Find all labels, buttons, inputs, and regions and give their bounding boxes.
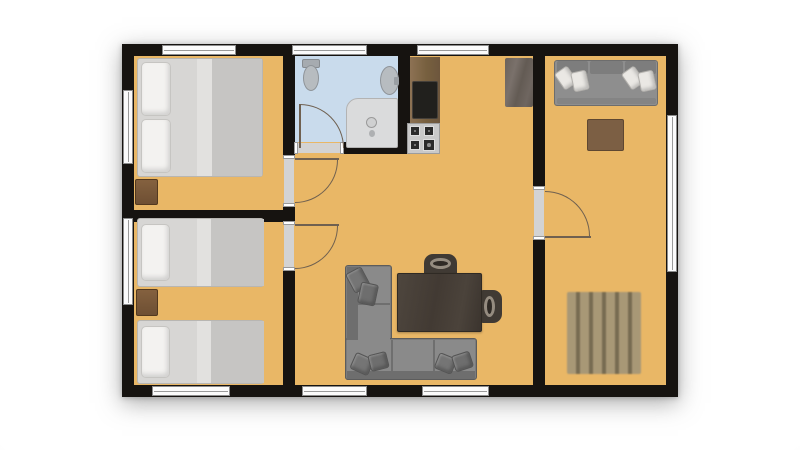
nightstand-bedroom1: [135, 179, 158, 205]
window-bottom-living-1: [302, 386, 367, 396]
stove-burner-2: [424, 126, 434, 136]
window-top-bedroom1: [162, 45, 236, 55]
desk-chair-top-handle: [430, 258, 451, 269]
stove-burner-3: [410, 140, 420, 150]
window-bottom-bedroom2: [152, 386, 230, 396]
wall-lounge-bottom-seg: [533, 240, 545, 385]
stove-burner-4: [423, 139, 435, 151]
window-right-lounge: [667, 115, 677, 272]
window-left-bedroom1: [123, 90, 133, 164]
toilet-bowl: [303, 65, 319, 91]
tall-cabinet: [505, 58, 533, 107]
lounge-pallet-table: [567, 292, 641, 374]
wall-lounge-top-seg: [533, 56, 545, 187]
door-opening-bedroom2: [284, 223, 294, 269]
lounge-sofa-back-2: [590, 61, 623, 74]
double-bed-pillow-bottom: [141, 119, 171, 173]
twin-bed-b-pillow: [141, 326, 170, 378]
double-bed-fold: [197, 59, 212, 176]
door-opening-bedroom1: [284, 157, 294, 205]
floor-plan-image: [0, 0, 800, 450]
window-top-bathroom: [292, 45, 367, 55]
desk-chair-right-handle: [484, 296, 495, 317]
window-top-kitchen: [417, 45, 489, 55]
door-leaf-lounge: [545, 236, 591, 238]
twin-bed-a-pillow: [141, 224, 170, 281]
door-opening-lounge: [534, 188, 544, 238]
window-bottom-living-2: [422, 386, 489, 396]
twin-bed-b-fold: [197, 321, 211, 383]
corner-sofa-seam-2: [391, 340, 393, 371]
twin-bed-a-fold: [197, 219, 211, 286]
kitchen-sink: [412, 81, 438, 119]
double-bed-pillow-top: [141, 62, 171, 116]
desk: [397, 273, 482, 332]
lounge-sofa-seat-edge: [557, 98, 656, 104]
window-left-bedroom2: [123, 218, 133, 305]
shower-drain: [366, 117, 377, 128]
shower-hose-dot: [369, 130, 375, 137]
wall-bedrooms-bottom-seg: [283, 269, 295, 385]
stove-burner-1: [410, 126, 420, 136]
sink-tap: [394, 77, 399, 85]
nightstand-bedroom2: [136, 289, 158, 316]
lounge-coffee-table: [587, 119, 624, 151]
